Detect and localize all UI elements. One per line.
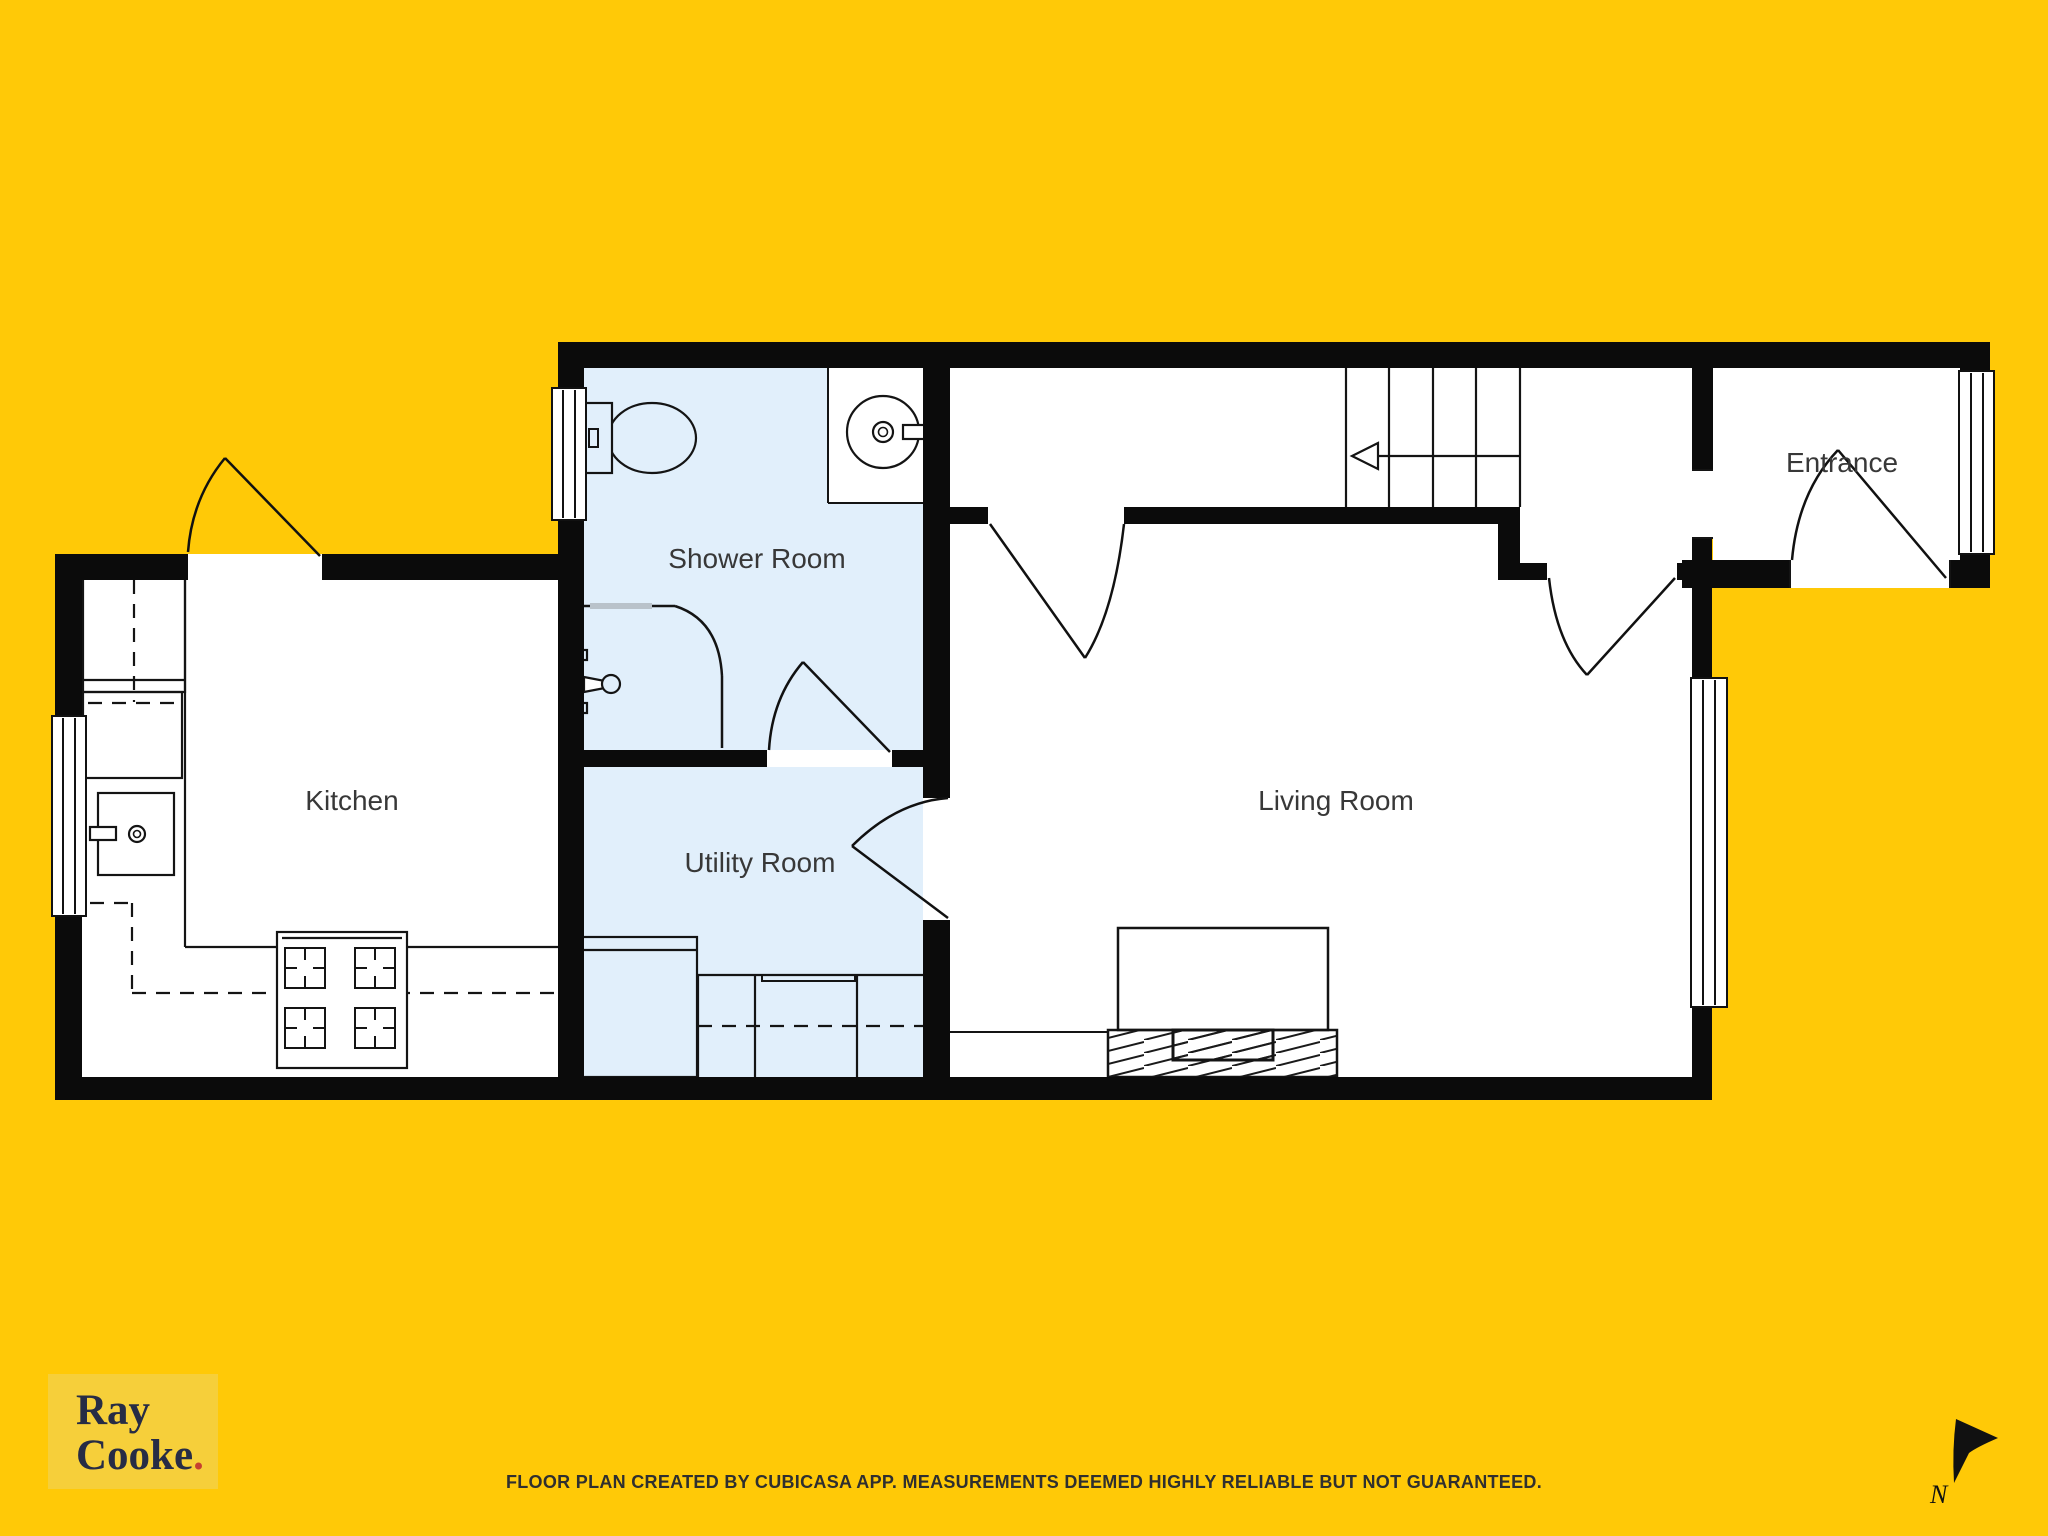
shower-room-label: Shower Room (668, 543, 845, 574)
compass: N (1925, 1405, 2025, 1520)
kitchen-exterior-door-swing (188, 458, 320, 556)
entrance-passage-opening (1692, 470, 1713, 538)
living-room-window (1691, 678, 1727, 1007)
utility-room-floor (583, 767, 923, 1077)
footer-disclaimer: FLOOR PLAN CREATED BY CUBICASA APP. MEAS… (0, 1472, 2048, 1493)
shower-door-opening (767, 750, 892, 767)
living-room-label: Living Room (1258, 785, 1414, 816)
kitchen-label: Kitchen (305, 785, 398, 816)
entrance-window (1959, 371, 1994, 554)
utility-room-label: Utility Room (685, 847, 836, 878)
kitchen-window (52, 716, 86, 916)
shower-window (552, 388, 586, 520)
corridor-door-opening (1547, 563, 1677, 580)
hallway-door-opening (988, 507, 1124, 524)
front-door-opening (1790, 560, 1950, 588)
entrance-label: Entrance (1786, 447, 1898, 478)
brand-logo-line1: Ray (76, 1388, 218, 1433)
wall (923, 342, 950, 1077)
wall (1498, 507, 1520, 580)
kitchen-sink-icon (90, 793, 174, 875)
wall (1692, 368, 1713, 470)
floor-plan: Shower Room Kitchen Utility Room Living … (0, 0, 2048, 1536)
toilet-icon (582, 403, 696, 473)
kitchen-door-opening (188, 554, 322, 580)
hallway-floor (950, 368, 1695, 507)
wall (558, 342, 1990, 368)
stove-icon (277, 932, 407, 1068)
wall (558, 580, 584, 1077)
fireplace-icon (1108, 928, 1337, 1077)
floor-plan-page: Shower Room Kitchen Utility Room Living … (0, 0, 2048, 1536)
compass-label: N (1930, 1480, 1947, 1510)
wall (55, 1077, 1712, 1100)
